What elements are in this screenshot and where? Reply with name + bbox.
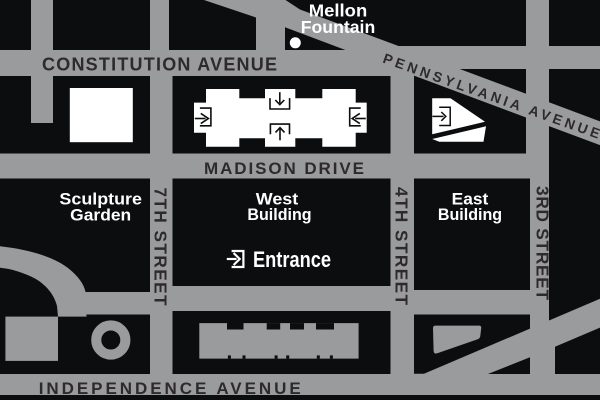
svg-text:Fountain: Fountain — [301, 17, 376, 37]
svg-text:7TH STREET: 7TH STREET — [151, 188, 171, 307]
svg-text:Garden: Garden — [70, 207, 131, 225]
svg-text:Building: Building — [438, 206, 502, 224]
svg-text:Building: Building — [247, 206, 311, 224]
svg-text:Entrance: Entrance — [253, 247, 331, 272]
svg-text:4TH STREET: 4TH STREET — [392, 187, 412, 306]
svg-text:CONSTITUTION AVENUE: CONSTITUTION AVENUE — [42, 55, 277, 75]
svg-text:INDEPENDENCE AVENUE: INDEPENDENCE AVENUE — [39, 379, 301, 398]
svg-text:MADISON DRIVE: MADISON DRIVE — [204, 159, 364, 178]
svg-text:3RD STREET: 3RD STREET — [533, 186, 553, 301]
